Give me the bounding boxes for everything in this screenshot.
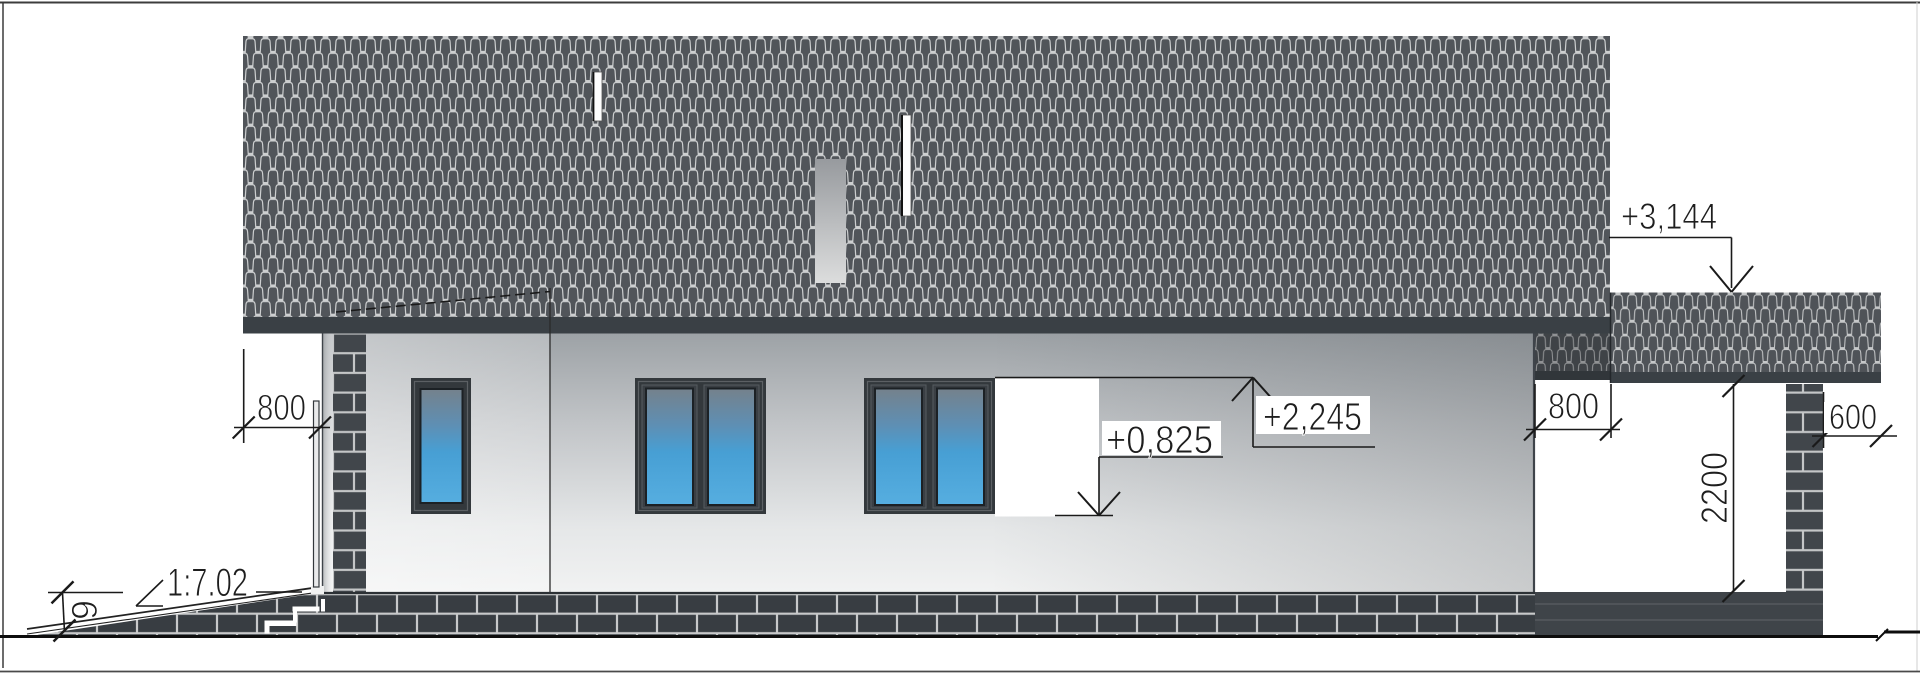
svg-text:800: 800 xyxy=(1548,386,1599,427)
svg-text:600: 600 xyxy=(1829,398,1877,437)
svg-text:+0,825: +0,825 xyxy=(1106,419,1213,462)
svg-text:1:7.02: 1:7.02 xyxy=(167,561,248,605)
svg-text:2200: 2200 xyxy=(1694,452,1735,524)
svg-text:+2,245: +2,245 xyxy=(1263,396,1362,439)
svg-text:800: 800 xyxy=(257,387,306,428)
svg-text:9: 9 xyxy=(64,600,105,620)
svg-text:+3,144: +3,144 xyxy=(1621,196,1717,237)
